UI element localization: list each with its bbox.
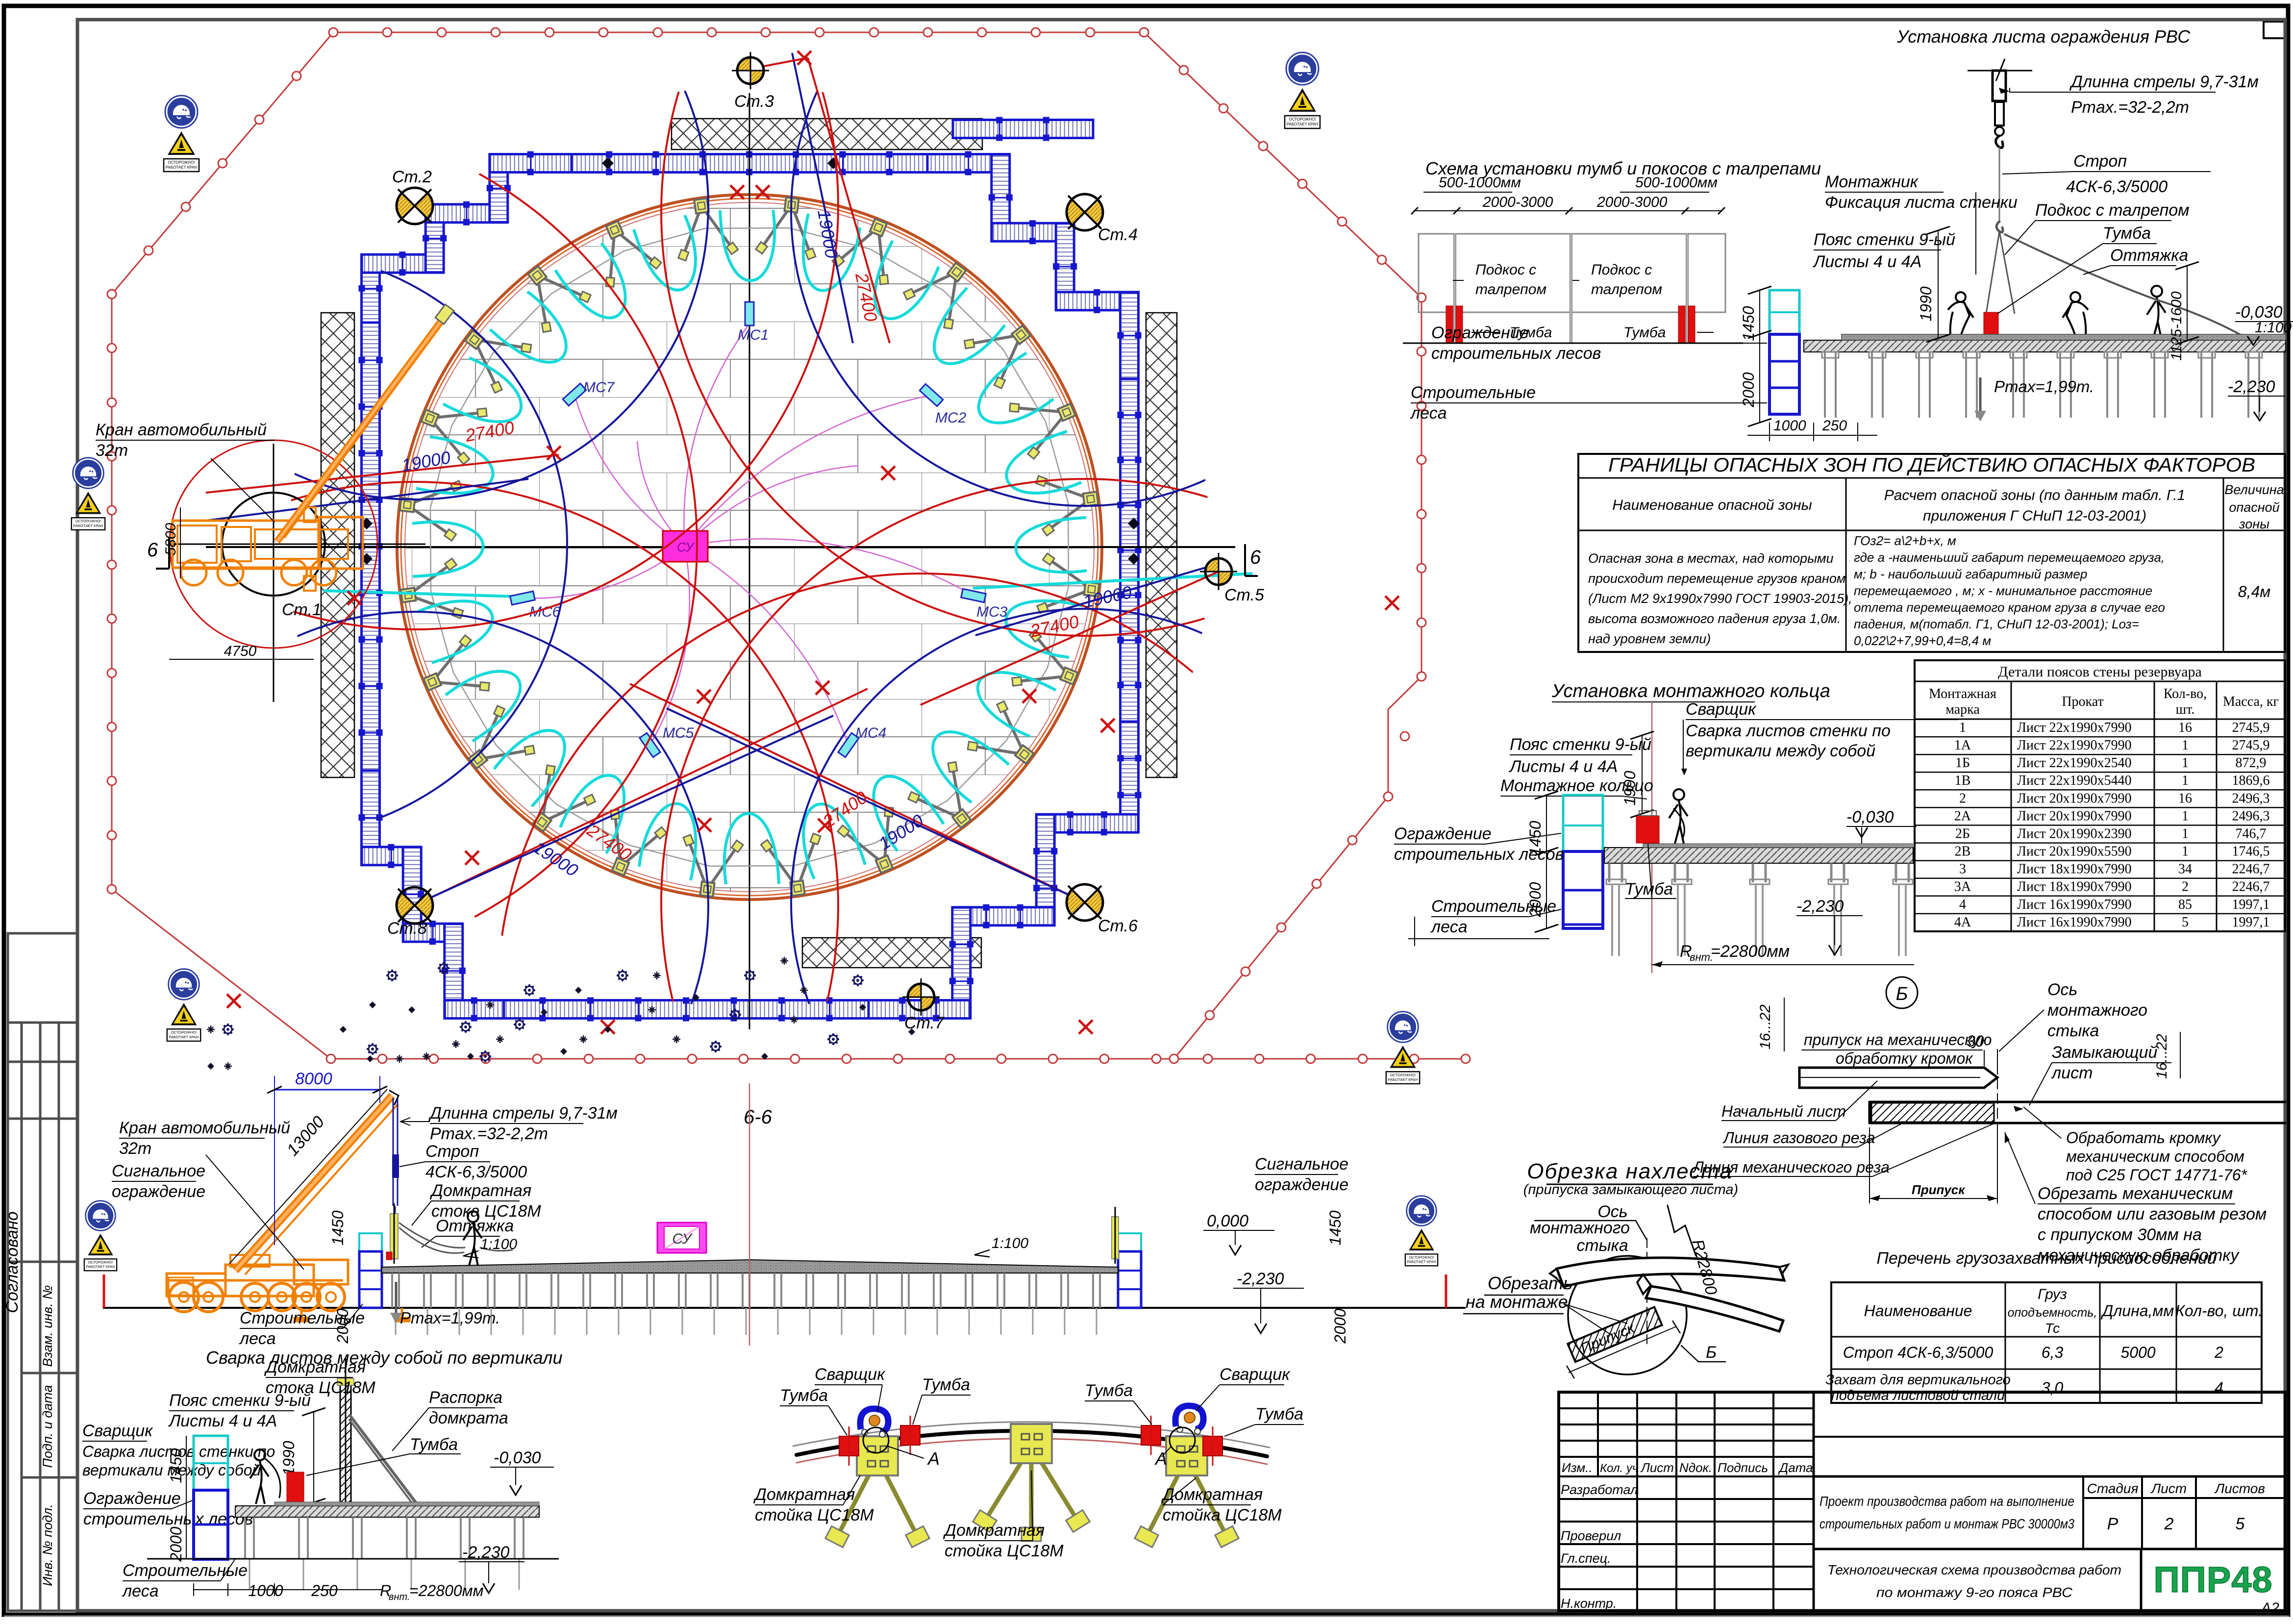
svg-text:способом или газовым резом: способом или газовым резом bbox=[2038, 1205, 2267, 1224]
svg-text:ГОз2= а\2+b+х, м: ГОз2= а\2+b+х, м bbox=[1854, 533, 1956, 548]
svg-text:РАБОТАЕТ КРАН: РАБОТАЕТ КРАН bbox=[86, 1265, 115, 1269]
svg-text:на монтаже: на монтаже bbox=[1466, 1292, 1568, 1312]
svg-text:2496,3: 2496,3 bbox=[2232, 791, 2270, 806]
svg-text:стойка ЦС18М: стойка ЦС18М bbox=[755, 1506, 874, 1524]
svg-text:ОСТОРОЖНО!: ОСТОРОЖНО! bbox=[75, 519, 101, 524]
svg-text:Детали поясов стены резервуара: Детали поясов стены резервуара bbox=[1998, 664, 2202, 680]
svg-text:Сигнальное: Сигнальное bbox=[112, 1162, 205, 1180]
svg-text:Установка листа ограждения РВС: Установка листа ограждения РВС bbox=[1896, 26, 2191, 47]
svg-text:Ст.7: Ст.7 bbox=[904, 1014, 945, 1032]
svg-text:Пояс стенки 9-ый: Пояс стенки 9-ый bbox=[1814, 230, 1955, 249]
svg-text:Фиксация листа стенки: Фиксация листа стенки bbox=[1825, 193, 2018, 212]
svg-text:1: 1 bbox=[2182, 808, 2189, 824]
svg-text:Ст.8: Ст.8 bbox=[387, 919, 427, 938]
svg-text:16: 16 bbox=[2178, 720, 2192, 735]
svg-text:Перечень грузозахватных приспо: Перечень грузозахватных приспособлений bbox=[1876, 1249, 2216, 1268]
svg-text:=22800мм: =22800мм bbox=[409, 1582, 484, 1599]
svg-text:Лист 22х1990х2540: Лист 22х1990х2540 bbox=[2017, 755, 2132, 771]
svg-text:(Лист М2 9х1990х7990 ГОСТ 1990: (Лист М2 9х1990х7990 ГОСТ 19903-2015), bbox=[1588, 591, 1852, 606]
svg-text:Nдок.: Nдок. bbox=[1679, 1460, 1712, 1475]
svg-text:Сварка листов стенки по: Сварка листов стенки по bbox=[1686, 722, 1891, 740]
svg-text:Гл.спец.: Гл.спец. bbox=[1561, 1551, 1611, 1566]
svg-text:1000: 1000 bbox=[1773, 418, 1806, 434]
svg-text:2: 2 bbox=[2164, 1515, 2174, 1533]
svg-text:746,7: 746,7 bbox=[2236, 826, 2267, 841]
svg-text:Лист 22х1990х5440: Лист 22х1990х5440 bbox=[2017, 773, 2132, 788]
svg-text:стыка: стыка bbox=[2047, 1022, 2099, 1040]
svg-text:обработку кромок: обработку кромок bbox=[1836, 1049, 1973, 1067]
svg-text:Длина,мм: Длина,мм bbox=[2101, 1302, 2174, 1320]
svg-text:ОСТОРОЖНО!: ОСТОРОЖНО! bbox=[168, 160, 195, 165]
svg-text:вертикали между собой: вертикали между собой bbox=[1686, 742, 1875, 760]
svg-text:строительных лесов: строительных лесов bbox=[1394, 845, 1564, 864]
svg-text:Н.контр.: Н.контр. bbox=[1561, 1596, 1617, 1611]
svg-text:=22800мм: =22800мм bbox=[1711, 942, 1790, 961]
svg-text:Сварщик: Сварщик bbox=[1686, 700, 1757, 719]
svg-text:Тумба: Тумба bbox=[780, 1386, 828, 1405]
svg-text:отлета перемещаемого краном гр: отлета перемещаемого краном груза в случ… bbox=[1854, 600, 2165, 615]
svg-text:2А: 2А bbox=[1954, 808, 1971, 824]
svg-text:Лист 20х1990х7990: Лист 20х1990х7990 bbox=[2017, 791, 2132, 806]
svg-text:2000-3000: 2000-3000 bbox=[1482, 194, 1553, 210]
svg-text:Обрезать механическим: Обрезать механическим bbox=[2038, 1184, 2233, 1203]
svg-text:Обрезка нахлеста: Обрезка нахлеста bbox=[1527, 1159, 1732, 1183]
svg-text:Листы 4 и 4А: Листы 4 и 4А bbox=[1813, 252, 1921, 271]
svg-text:Взам. инв. №: Взам. инв. № bbox=[40, 1285, 55, 1367]
svg-text:Ст.2: Ст.2 bbox=[392, 168, 432, 186]
svg-text:250: 250 bbox=[1822, 418, 1847, 434]
svg-text:стыка: стыка bbox=[1576, 1236, 1628, 1255]
svg-text:Наименование: Наименование bbox=[1864, 1302, 1972, 1320]
svg-text:Кол-во,: Кол-во, bbox=[2164, 686, 2207, 701]
svg-text:опасной: опасной bbox=[2229, 500, 2279, 515]
svg-text:1990: 1990 bbox=[280, 1441, 298, 1475]
svg-text:6: 6 bbox=[1250, 547, 1261, 568]
svg-text:МС5: МС5 bbox=[663, 725, 694, 741]
svg-text:Дата: Дата bbox=[1778, 1460, 1813, 1475]
svg-text:Замыкающий: Замыкающий bbox=[2052, 1043, 2157, 1062]
svg-text:3: 3 bbox=[1959, 862, 1966, 877]
svg-text:6: 6 bbox=[147, 539, 158, 561]
svg-text:Масса, кг: Масса, кг bbox=[2223, 694, 2279, 709]
svg-text:1: 1 bbox=[2182, 844, 2189, 859]
svg-text:Наименование опасной зоны: Наименование опасной зоны bbox=[1612, 497, 1812, 513]
svg-text:Ось: Ось bbox=[2047, 980, 2077, 999]
svg-text:ограждение: ограждение bbox=[1255, 1175, 1348, 1194]
svg-text:1990: 1990 bbox=[1621, 771, 1639, 805]
svg-text:Инв. № подл.: Инв. № подл. bbox=[40, 1504, 55, 1586]
svg-text:1:100: 1:100 bbox=[2255, 320, 2292, 336]
svg-text:1450: 1450 bbox=[1326, 1210, 1344, 1245]
svg-text:леса: леса bbox=[239, 1329, 276, 1348]
svg-text:Подкос с талрепом: Подкос с талрепом bbox=[2035, 201, 2190, 220]
svg-text:над уровнем земли): над уровнем земли) bbox=[1588, 631, 1711, 646]
svg-text:Согласовано: Согласовано bbox=[3, 1211, 22, 1313]
svg-text:Кол-во, шт.: Кол-во, шт. bbox=[2175, 1302, 2263, 1320]
svg-text:СУ: СУ bbox=[672, 1231, 693, 1247]
svg-text:Прокат: Прокат bbox=[2062, 694, 2103, 709]
svg-text:стойка ЦС18М: стойка ЦС18М bbox=[1163, 1506, 1282, 1524]
svg-text:1450: 1450 bbox=[329, 1210, 347, 1245]
svg-text:Монтажник: Монтажник bbox=[1825, 173, 1919, 191]
svg-text:34: 34 bbox=[2178, 862, 2192, 877]
svg-text:Подпись: Подпись bbox=[1718, 1460, 1768, 1475]
svg-text:Технологическая схема производ: Технологическая схема производства работ bbox=[1827, 1562, 2121, 1577]
svg-text:872,9: 872,9 bbox=[2236, 755, 2267, 771]
svg-text:Пояс стенки 9-ый: Пояс стенки 9-ый bbox=[1510, 735, 1651, 754]
svg-text:Сварщик: Сварщик bbox=[1220, 1365, 1291, 1384]
svg-text:5: 5 bbox=[2236, 1515, 2245, 1533]
svg-text:Листов: Листов bbox=[2214, 1481, 2265, 1496]
svg-text:2: 2 bbox=[2182, 879, 2189, 895]
svg-text:Подкос с: Подкос с bbox=[1591, 262, 1652, 278]
svg-text:6,3: 6,3 bbox=[2042, 1344, 2064, 1361]
svg-text:Лист 20х1990х2390: Лист 20х1990х2390 bbox=[2017, 826, 2132, 841]
svg-text:перемещаемого , м; х - минимал: перемещаемого , м; х - минимальное расст… bbox=[1854, 583, 2152, 598]
svg-text:Тумба: Тумба bbox=[1623, 325, 1666, 341]
svg-text:16...22: 16...22 bbox=[2154, 1034, 2170, 1079]
svg-text:2000: 2000 bbox=[1331, 1308, 1349, 1344]
svg-text:зоны: зоны bbox=[2239, 517, 2269, 531]
svg-text:Р: Р bbox=[2107, 1515, 2119, 1533]
svg-text:Ст.3: Ст.3 bbox=[734, 92, 774, 111]
svg-text:Подп. и дата: Подп. и дата bbox=[40, 1385, 55, 1468]
svg-text:2246,7: 2246,7 bbox=[2232, 862, 2270, 877]
svg-text:2246,7: 2246,7 bbox=[2232, 879, 2270, 895]
svg-text:Тумба: Тумба bbox=[2103, 224, 2151, 243]
svg-text:-0,030: -0,030 bbox=[2235, 303, 2282, 322]
svg-text:Строп: Строп bbox=[2073, 152, 2127, 171]
svg-text:Опасная зона в местах, над кот: Опасная зона в местах, над которыми bbox=[1588, 551, 1834, 566]
svg-text:Б: Б bbox=[1896, 984, 1908, 1004]
svg-text:Домкратная: Домкратная bbox=[753, 1485, 855, 1504]
svg-text:1: 1 bbox=[2182, 738, 2189, 753]
svg-text:Лист 22х1990х7990: Лист 22х1990х7990 bbox=[2017, 738, 2132, 753]
svg-text:Сварка листов между собой по в: Сварка листов между собой по вертикали bbox=[206, 1348, 563, 1368]
svg-text:Монтажная: Монтажная bbox=[1929, 686, 1996, 701]
svg-text:1450: 1450 bbox=[1740, 306, 1757, 341]
svg-text:механическим способом: механическим способом bbox=[2066, 1148, 2244, 1165]
svg-text:талрепом: талрепом bbox=[1475, 281, 1546, 298]
svg-text:1:100: 1:100 bbox=[480, 1236, 517, 1252]
svg-text:Листы 4 и 4А: Листы 4 и 4А bbox=[1509, 757, 1618, 776]
svg-text:4А: 4А bbox=[1954, 915, 1971, 930]
svg-text:Пояс стенки 9-ый: Пояс стенки 9-ый bbox=[169, 1391, 311, 1410]
svg-text:Разработал: Разработал bbox=[1561, 1482, 1638, 1497]
svg-text:2В: 2В bbox=[1955, 844, 1971, 859]
svg-text:РАБОТАЕТ КРАН: РАБОТАЕТ КРАН bbox=[166, 165, 198, 170]
svg-text:-2,230: -2,230 bbox=[1237, 1270, 1284, 1288]
svg-text:Стадия: Стадия bbox=[2087, 1481, 2139, 1496]
svg-text:2496,3: 2496,3 bbox=[2232, 808, 2270, 824]
svg-text:Лист: Лист bbox=[1640, 1460, 1674, 1475]
svg-text:500-1000мм: 500-1000мм bbox=[1635, 175, 1718, 191]
svg-text:МС7: МС7 bbox=[583, 379, 615, 396]
svg-text:1: 1 bbox=[2182, 755, 2189, 771]
svg-text:1:100: 1:100 bbox=[992, 1235, 1028, 1251]
svg-text:-0,030: -0,030 bbox=[1846, 808, 1894, 826]
svg-text:1: 1 bbox=[2182, 826, 2189, 841]
svg-text:Ст.4: Ст.4 bbox=[1098, 225, 1138, 244]
svg-text:6-6: 6-6 bbox=[744, 1106, 773, 1128]
svg-text:8,4м: 8,4м bbox=[2238, 583, 2270, 600]
svg-text:Листы 4 и 4А: Листы 4 и 4А bbox=[168, 1412, 277, 1430]
svg-text:4СК-6,3/5000: 4СК-6,3/5000 bbox=[425, 1163, 527, 1181]
svg-text:подъема листовой стали: подъема листовой стали bbox=[1831, 1388, 2005, 1403]
svg-text:2000: 2000 bbox=[1740, 372, 1757, 407]
svg-text:500-1000мм: 500-1000мм bbox=[1439, 175, 1521, 191]
svg-text:Ст.5: Ст.5 bbox=[1224, 586, 1264, 604]
svg-text:1746,5: 1746,5 bbox=[2232, 844, 2270, 859]
svg-text:РАБОТАЕТ КРАН: РАБОТАЕТ КРАН bbox=[73, 524, 103, 528]
svg-text:Ст.1: Ст.1 bbox=[282, 600, 322, 619]
svg-text:внт.: внт. bbox=[1690, 951, 1713, 963]
svg-text:1125-1600: 1125-1600 bbox=[2168, 291, 2185, 361]
svg-text:Расчет опасной зоны (по данным: Расчет опасной зоны (по данным табл. Г.1 bbox=[1884, 487, 2185, 503]
svg-text:Тумба: Тумба bbox=[1625, 880, 1673, 899]
svg-text:Лист 20х1990х7990: Лист 20х1990х7990 bbox=[2017, 808, 2132, 824]
svg-text:0,022\2+7,99+0,4=8,4 м: 0,022\2+7,99+0,4=8,4 м bbox=[1854, 633, 1991, 648]
svg-text:1В: 1В bbox=[1955, 773, 1971, 788]
svg-text:85: 85 bbox=[2178, 897, 2192, 912]
svg-text:марка: марка bbox=[1945, 702, 1980, 717]
svg-text:ППР48: ППР48 bbox=[2153, 1559, 2272, 1600]
svg-text:ГРАНИЦЫ ОПАСНЫХ ЗОН ПО ДЕЙСТВИ: ГРАНИЦЫ ОПАСНЫХ ЗОН ПО ДЕЙСТВИЮ ОПАСНЫХ … bbox=[1608, 453, 2255, 476]
svg-text:-0,030: -0,030 bbox=[494, 1449, 541, 1467]
svg-text:Обработать кромку: Обработать кромку bbox=[2066, 1129, 2221, 1147]
svg-text:0,000: 0,000 bbox=[1207, 1212, 1248, 1230]
svg-text:Домкратная: Домкратная bbox=[943, 1521, 1045, 1540]
svg-text:СУ: СУ bbox=[677, 540, 695, 554]
svg-text:где а -наименьший габарит пере: где а -наименьший габарит перемещаемого … bbox=[1854, 550, 2165, 565]
svg-text:Строп 4СК-6,3/5000: Строп 4СК-6,3/5000 bbox=[1843, 1344, 1994, 1361]
svg-text:Тс: Тс bbox=[2045, 1321, 2060, 1336]
svg-text:внт.: внт. bbox=[389, 1592, 410, 1602]
svg-text:250: 250 bbox=[311, 1582, 338, 1599]
svg-text:леса: леса bbox=[1430, 918, 1468, 936]
svg-text:Ограждение: Ограждение bbox=[1431, 324, 1529, 342]
svg-text:Линия газового реза: Линия газового реза bbox=[1722, 1129, 1875, 1147]
svg-text:2Б: 2Б bbox=[1955, 826, 1970, 841]
svg-text:2: 2 bbox=[2214, 1344, 2223, 1361]
svg-text:1990: 1990 bbox=[1917, 286, 1935, 321]
svg-text:монтажного: монтажного bbox=[1530, 1219, 1630, 1237]
svg-text:А: А bbox=[1154, 1449, 1167, 1469]
svg-text:Лист 16х1990х7990: Лист 16х1990х7990 bbox=[2017, 897, 2132, 912]
svg-text:Сварщик: Сварщик bbox=[82, 1422, 153, 1440]
svg-text:домкрата: домкрата bbox=[429, 1409, 508, 1427]
svg-text:Домкратная: Домкратная bbox=[429, 1181, 531, 1200]
svg-text:Сварщик: Сварщик bbox=[815, 1365, 886, 1384]
svg-text:(припуска замыкающего листа): (припуска замыкающего листа) bbox=[1523, 1182, 1738, 1198]
svg-text:Оттяжка: Оттяжка bbox=[2110, 246, 2188, 265]
svg-text:Длинна стрелы 9,7-31м: Длинна стрелы 9,7-31м bbox=[428, 1104, 618, 1123]
svg-text:30: 30 bbox=[1967, 1032, 1984, 1050]
svg-text:Длинна стрелы 9,7-31м: Длинна стрелы 9,7-31м bbox=[2069, 73, 2259, 91]
svg-text:Кран автомобильный: Кран автомобильный bbox=[119, 1119, 290, 1137]
svg-text:Распорка: Распорка bbox=[429, 1388, 502, 1407]
svg-text:Тумба: Тумба bbox=[410, 1435, 458, 1454]
svg-text:МС3: МС3 bbox=[976, 604, 1008, 620]
svg-text:Величина: Величина bbox=[2224, 482, 2284, 497]
svg-text:5800: 5800 bbox=[163, 523, 179, 555]
svg-text:Установка монтажного кольца: Установка монтажного кольца bbox=[1551, 681, 1830, 701]
svg-text:Строительные: Строительные bbox=[1411, 383, 1536, 402]
svg-text:2745,9: 2745,9 bbox=[2232, 738, 2270, 753]
svg-text:2000: 2000 bbox=[167, 1526, 185, 1562]
svg-text:шт.: шт. bbox=[2176, 702, 2195, 717]
svg-text:4: 4 bbox=[1959, 897, 1966, 912]
svg-text:Обрезать: Обрезать bbox=[1488, 1273, 1572, 1293]
svg-text:А: А bbox=[927, 1449, 940, 1469]
svg-text:леса: леса bbox=[122, 1582, 159, 1600]
svg-text:Проверил: Проверил bbox=[1561, 1528, 1621, 1543]
svg-text:строительных лесов: строительных лесов bbox=[1431, 344, 1601, 363]
svg-text:1869,6: 1869,6 bbox=[2232, 773, 2270, 788]
svg-text:3,0: 3,0 bbox=[2042, 1379, 2064, 1397]
svg-text:РАБОТАЕТ КРАН: РАБОТАЕТ КРАН bbox=[169, 1035, 199, 1039]
svg-text:приложения Г СНиП 12-03-2001): приложения Г СНиП 12-03-2001) bbox=[1923, 508, 2146, 524]
svg-text:Строп: Строп bbox=[425, 1142, 479, 1161]
svg-text:Б: Б bbox=[1706, 1343, 1717, 1362]
svg-text:Кол. уч: Кол. уч bbox=[1600, 1462, 1638, 1475]
svg-text:происходит перемещение грузов: происходит перемещение грузов краном bbox=[1588, 571, 1845, 586]
svg-text:Строительные: Строительные bbox=[1431, 897, 1556, 916]
svg-text:Лист 18х1990х7990: Лист 18х1990х7990 bbox=[2017, 862, 2132, 877]
svg-text:Ограждение: Ограждение bbox=[83, 1489, 181, 1508]
svg-text:Лист: Лист bbox=[2150, 1481, 2187, 1496]
svg-text:ограждение: ограждение bbox=[112, 1182, 205, 1201]
svg-text:РАБОТАЕТ КРАН: РАБОТАЕТ КРАН bbox=[1407, 1260, 1436, 1264]
svg-text:16...22: 16...22 bbox=[1757, 1004, 1773, 1049]
svg-text:1450: 1450 bbox=[167, 1448, 185, 1483]
svg-text:4750: 4750 bbox=[224, 643, 257, 659]
svg-text:Pmax.=32-2,2m: Pmax.=32-2,2m bbox=[2071, 98, 2189, 117]
svg-text:Припуск: Припуск bbox=[1912, 1182, 1966, 1197]
svg-text:А2: А2 bbox=[2260, 1600, 2279, 1616]
svg-text:МС1: МС1 bbox=[738, 327, 769, 343]
svg-text:-2,230: -2,230 bbox=[1796, 897, 1844, 916]
svg-text:Лист 16х1990х7990: Лист 16х1990х7990 bbox=[2017, 915, 2132, 930]
svg-text:Начальный лист: Начальный лист bbox=[1721, 1102, 1846, 1120]
svg-text:Pmax.=32-2,2m: Pmax.=32-2,2m bbox=[430, 1124, 548, 1143]
svg-text:ОСТОРОЖНО!: ОСТОРОЖНО! bbox=[171, 1030, 197, 1035]
svg-text:1Б: 1Б bbox=[1955, 755, 1970, 771]
svg-text:1А: 1А bbox=[1954, 738, 1971, 753]
svg-text:4: 4 bbox=[2215, 1379, 2223, 1397]
svg-text:4СК-6,3/5000: 4СК-6,3/5000 bbox=[2066, 177, 2168, 196]
svg-text:1997,1: 1997,1 bbox=[2232, 915, 2270, 930]
svg-text:5: 5 bbox=[2182, 915, 2189, 930]
svg-text:1: 1 bbox=[2182, 773, 2189, 788]
svg-text:Тумба: Тумба bbox=[1085, 1381, 1133, 1400]
svg-text:Ограждение: Ограждение bbox=[1394, 824, 1492, 843]
svg-text:с припуском 30мм на: с припуском 30мм на bbox=[2038, 1225, 2202, 1244]
svg-text:5000: 5000 bbox=[2120, 1344, 2155, 1361]
svg-text:Pmax=1,99т.: Pmax=1,99т. bbox=[400, 1309, 500, 1327]
svg-text:Сигнальное: Сигнальное bbox=[1255, 1155, 1348, 1174]
svg-text:-2,230: -2,230 bbox=[462, 1543, 509, 1562]
svg-text:8000: 8000 bbox=[295, 1070, 332, 1088]
svg-text:ОСТОРОЖНО!: ОСТОРОЖНО! bbox=[1289, 117, 1316, 122]
svg-text:высота возможного падения груз: высота возможного падения груза 1,0м. bbox=[1588, 611, 1841, 626]
svg-text:32т: 32т bbox=[119, 1139, 151, 1158]
svg-text:Кран автомобильный: Кран автомобильный bbox=[96, 421, 267, 439]
svg-text:Строительные: Строительные bbox=[123, 1561, 248, 1580]
svg-text:16: 16 bbox=[2178, 791, 2192, 806]
svg-text:Груз: Груз bbox=[2038, 1286, 2067, 1302]
svg-text:Лист 22х1990х7990: Лист 22х1990х7990 bbox=[2017, 720, 2132, 735]
svg-text:Лист 18х1990х7990: Лист 18х1990х7990 bbox=[2017, 879, 2132, 895]
svg-text:под С25 ГОСТ 14771-76*: под С25 ГОСТ 14771-76* bbox=[2066, 1166, 2248, 1184]
svg-text:стойка ЦС18М: стойка ЦС18М bbox=[945, 1542, 1064, 1560]
svg-text:МС2: МС2 bbox=[935, 410, 967, 426]
svg-text:2000-3000: 2000-3000 bbox=[1596, 194, 1668, 210]
svg-text:Домкратная: Домкратная bbox=[264, 1358, 366, 1376]
svg-text:Ст.6: Ст.6 bbox=[1098, 917, 1138, 935]
svg-text:Тумба: Тумба bbox=[1255, 1405, 1303, 1424]
svg-text:32т: 32т bbox=[96, 441, 128, 460]
svg-text:припуск на механическую: припуск на механическую bbox=[1804, 1031, 1992, 1049]
svg-text:2745,9: 2745,9 bbox=[2232, 720, 2270, 735]
svg-text:2: 2 bbox=[1959, 791, 1966, 806]
svg-text:1000: 1000 bbox=[248, 1582, 283, 1599]
svg-text:по монтажу 9-го пояса РВС: по монтажу 9-го пояса РВС bbox=[1876, 1585, 2073, 1600]
svg-text:РАБОТАЕТ КРАН: РАБОТАЕТ КРАН bbox=[1388, 1077, 1418, 1082]
svg-text:строительных работ и монтаж РВ: строительных работ и монтаж РВС 30000м3 bbox=[1819, 1516, 2074, 1531]
svg-text:МС4: МС4 bbox=[855, 725, 886, 741]
svg-text:Изм..: Изм.. bbox=[1562, 1460, 1593, 1475]
svg-text:1: 1 bbox=[1959, 720, 1966, 735]
svg-text:талрепом: талрепом bbox=[1591, 281, 1662, 298]
svg-text:ОСТОРОЖНО!: ОСТОРОЖНО! bbox=[88, 1260, 113, 1265]
svg-text:леса: леса bbox=[1410, 404, 1447, 423]
svg-text:Проект производства работ на в: Проект производства работ на выполнение bbox=[1819, 1494, 2074, 1509]
svg-text:Тумба: Тумба bbox=[922, 1375, 970, 1394]
svg-text:-2,230: -2,230 bbox=[2228, 377, 2275, 396]
svg-text:монтажного: монтажного bbox=[2047, 1001, 2147, 1020]
svg-text:падения, м(потабл. Г1, СНиП 12: падения, м(потабл. Г1, СНиП 12-03-2001);… bbox=[1854, 617, 2139, 631]
svg-text:Подкос с: Подкос с bbox=[1475, 262, 1536, 278]
svg-text:1997,1: 1997,1 bbox=[2232, 897, 2270, 912]
svg-text:Лист 20х1990х5590: Лист 20х1990х5590 bbox=[2017, 844, 2132, 859]
svg-text:Pmax=1,99т.: Pmax=1,99т. bbox=[1994, 377, 2094, 396]
svg-text:оподъемность,: оподъемность, bbox=[2008, 1306, 2097, 1320]
svg-text:3А: 3А bbox=[1954, 879, 1971, 895]
svg-text:ОСТОРОЖНО!: ОСТОРОЖНО! bbox=[1390, 1073, 1416, 1077]
svg-text:лист: лист bbox=[2051, 1064, 2093, 1082]
svg-text:м; b - наибольший габаритный р: м; b - наибольший габаритный размер bbox=[1854, 567, 2087, 581]
svg-text:Захват для вертикального: Захват для вертикального bbox=[1825, 1372, 2011, 1388]
svg-text:РАБОТАЕТ КРАН: РАБОТАЕТ КРАН bbox=[1287, 122, 1319, 126]
svg-text:ОСТОРОЖНО!: ОСТОРОЖНО! bbox=[1409, 1255, 1434, 1260]
